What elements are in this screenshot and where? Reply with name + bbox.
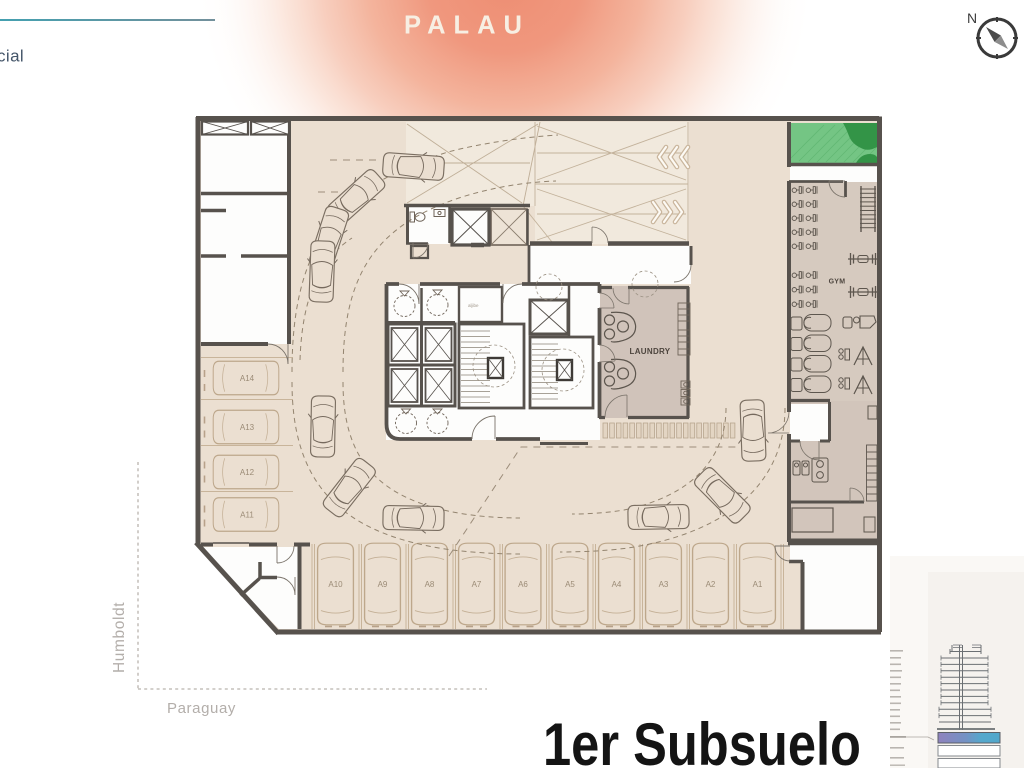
svg-text:A10: A10	[328, 580, 343, 589]
svg-text:LAUNDRY: LAUNDRY	[630, 347, 671, 356]
svg-text:A14: A14	[240, 374, 255, 383]
svg-text:A13: A13	[240, 423, 255, 432]
svg-text:Paraguay: Paraguay	[167, 700, 236, 717]
svg-text:1er Subsuelo: 1er Subsuelo	[543, 711, 861, 768]
svg-text:A7: A7	[472, 580, 482, 589]
svg-text:A3: A3	[659, 580, 669, 589]
svg-text:A6: A6	[518, 580, 528, 589]
svg-text:aljibe: aljibe	[468, 303, 479, 308]
svg-text:A9: A9	[378, 580, 388, 589]
svg-text:A4: A4	[612, 580, 622, 589]
svg-text:PALAU: PALAU	[404, 12, 530, 40]
svg-text:A2: A2	[706, 580, 716, 589]
svg-text:GYM: GYM	[829, 279, 846, 286]
svg-text:A8: A8	[425, 580, 435, 589]
svg-text:A1: A1	[753, 580, 763, 589]
svg-text:A5: A5	[565, 580, 575, 589]
svg-text:A11: A11	[240, 511, 254, 520]
svg-text:N: N	[967, 10, 977, 26]
svg-text:Humboldt: Humboldt	[111, 602, 128, 673]
svg-text:cial: cial	[0, 47, 24, 66]
svg-text:A12: A12	[240, 468, 255, 477]
